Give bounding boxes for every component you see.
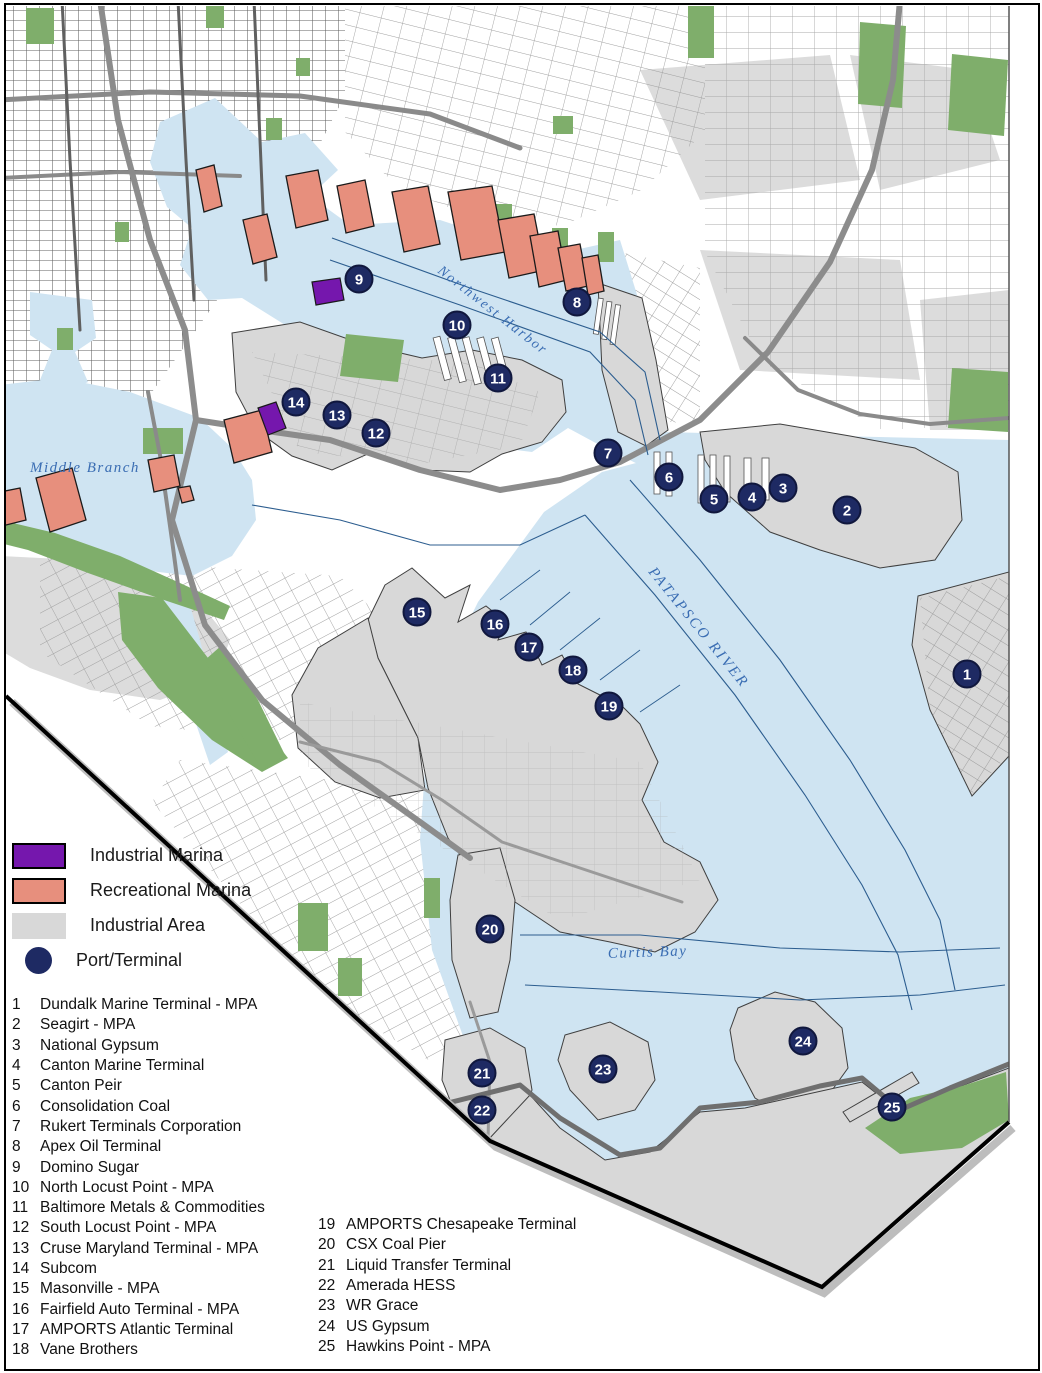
terminal-name: Liquid Transfer Terminal [346, 1257, 638, 1275]
terminal-list-item: 19AMPORTS Chesapeake Terminal [318, 1215, 638, 1235]
legend-item: Port/Terminal [12, 943, 312, 978]
terminal-list-item: 23WR Grace [318, 1296, 638, 1316]
terminal-name: Seagirt - MPA [40, 1016, 312, 1034]
port-marker-13[interactable]: 13 [324, 402, 351, 429]
terminal-number: 4 [12, 1057, 40, 1075]
svg-text:3: 3 [779, 481, 787, 498]
port-marker-17[interactable]: 17 [516, 634, 543, 661]
terminal-name: Canton Peir [40, 1077, 312, 1095]
terminal-name: National Gypsum [40, 1037, 312, 1055]
terminal-number: 8 [12, 1138, 40, 1156]
svg-text:10: 10 [449, 318, 466, 335]
terminal-name: AMPORTS Atlantic Terminal [40, 1321, 312, 1339]
port-marker-24[interactable]: 24 [790, 1028, 817, 1055]
svg-text:13: 13 [329, 408, 346, 425]
terminal-number: 18 [12, 1341, 40, 1359]
legend-item: Recreational Marina [12, 873, 312, 908]
terminal-name: US Gypsum [346, 1318, 638, 1336]
legend-item: Industrial Area [12, 908, 312, 943]
port-marker-11[interactable]: 11 [485, 365, 512, 392]
terminal-list-item: 10North Locust Point - MPA [12, 1178, 312, 1198]
terminal-name: CSX Coal Pier [346, 1236, 638, 1254]
port-marker-22[interactable]: 22 [469, 1097, 496, 1124]
port-marker-6[interactable]: 6 [656, 464, 683, 491]
legend-label: Industrial Area [90, 915, 205, 936]
terminal-number: 23 [318, 1297, 346, 1315]
terminal-number: 20 [318, 1236, 346, 1254]
port-marker-1[interactable]: 1 [954, 661, 981, 688]
terminal-list-item: 7Rukert Terminals Corporation [12, 1117, 312, 1137]
terminal-name: Consolidation Coal [40, 1098, 312, 1116]
terminal-number: 1 [12, 996, 40, 1014]
terminal-list-item: 8Apex Oil Terminal [12, 1137, 312, 1157]
terminal-name: Rukert Terminals Corporation [40, 1118, 312, 1136]
svg-text:2: 2 [843, 503, 851, 520]
terminal-list-item: 18Vane Brothers [12, 1340, 312, 1360]
port-marker-18[interactable]: 18 [560, 657, 587, 684]
terminal-name: Masonville - MPA [40, 1280, 312, 1298]
terminal-list-item: 25Hawkins Point - MPA [318, 1337, 638, 1357]
legend: Industrial MarinaRecreational MarinaIndu… [12, 838, 312, 978]
terminal-name: Canton Marine Terminal [40, 1057, 312, 1075]
terminal-list-item: 5Canton Peir [12, 1076, 312, 1096]
terminal-list-item: 6Consolidation Coal [12, 1096, 312, 1116]
terminal-number: 12 [12, 1219, 40, 1237]
terminal-list-item: 11Baltimore Metals & Commodities [12, 1198, 312, 1218]
port-marker-8[interactable]: 8 [564, 289, 591, 316]
terminal-number: 14 [12, 1260, 40, 1278]
terminal-number: 21 [318, 1257, 346, 1275]
svg-text:22: 22 [474, 1103, 491, 1120]
terminal-number: 22 [318, 1277, 346, 1295]
terminal-name: Amerada HESS [346, 1277, 638, 1295]
legend-swatch-industrial-area [12, 913, 66, 939]
terminal-number: 5 [12, 1077, 40, 1095]
port-marker-7[interactable]: 7 [595, 440, 622, 467]
port-marker-2[interactable]: 2 [834, 497, 861, 524]
map-page: Middle BranchNorthwest HarborPATAPSCO RI… [0, 0, 1042, 1373]
terminal-list-item: 15Masonville - MPA [12, 1279, 312, 1299]
terminal-number: 13 [12, 1240, 40, 1258]
terminal-number: 25 [318, 1338, 346, 1356]
terminal-list-column-2: 19AMPORTS Chesapeake Terminal20CSX Coal … [318, 1215, 638, 1357]
terminal-list-item: 3National Gypsum [12, 1036, 312, 1056]
terminal-list-item: 9Domino Sugar [12, 1157, 312, 1177]
legend-swatch-recreational-marina [12, 878, 66, 904]
svg-text:25: 25 [884, 1100, 901, 1117]
terminal-name: Baltimore Metals & Commodities [40, 1199, 312, 1217]
terminal-list-column-1: 1Dundalk Marine Terminal - MPA2Seagirt -… [12, 995, 312, 1360]
port-marker-21[interactable]: 21 [469, 1060, 496, 1087]
svg-text:23: 23 [595, 1062, 612, 1079]
terminal-list-item: 14Subcom [12, 1259, 312, 1279]
terminal-number: 6 [12, 1098, 40, 1116]
port-marker-12[interactable]: 12 [363, 420, 390, 447]
legend-label: Port/Terminal [76, 950, 182, 971]
terminal-list-item: 17AMPORTS Atlantic Terminal [12, 1320, 312, 1340]
svg-text:9: 9 [355, 272, 363, 289]
svg-text:14: 14 [288, 395, 305, 412]
terminal-number: 16 [12, 1301, 40, 1319]
terminal-number: 9 [12, 1159, 40, 1177]
water-label-curtis-bay: Curtis Bay [608, 943, 688, 962]
port-marker-14[interactable]: 14 [283, 389, 310, 416]
terminal-name: Subcom [40, 1260, 312, 1278]
terminal-name: Dundalk Marine Terminal - MPA [40, 996, 312, 1014]
legend-label: Industrial Marina [90, 845, 223, 866]
port-marker-10[interactable]: 10 [444, 312, 471, 339]
terminal-name: Cruse Maryland Terminal - MPA [40, 1240, 312, 1258]
svg-text:17: 17 [521, 640, 538, 657]
svg-text:7: 7 [604, 446, 612, 463]
terminal-number: 7 [12, 1118, 40, 1136]
svg-text:19: 19 [601, 699, 618, 716]
svg-text:1: 1 [963, 667, 971, 684]
terminal-number: 2 [12, 1016, 40, 1034]
terminal-number: 24 [318, 1318, 346, 1336]
port-marker-25[interactable]: 25 [879, 1094, 906, 1121]
terminal-name: Vane Brothers [40, 1341, 312, 1359]
terminal-list-item: 21Liquid Transfer Terminal [318, 1256, 638, 1276]
port-marker-20[interactable]: 20 [477, 916, 504, 943]
terminal-name: Domino Sugar [40, 1159, 312, 1177]
svg-text:20: 20 [482, 922, 499, 939]
legend-label: Recreational Marina [90, 880, 251, 901]
legend-item: Industrial Marina [12, 838, 312, 873]
terminal-name: Hawkins Point - MPA [346, 1338, 638, 1356]
terminal-name: AMPORTS Chesapeake Terminal [346, 1216, 638, 1234]
water-label-middle-branch: Middle Branch [29, 460, 140, 476]
terminal-name: Fairfield Auto Terminal - MPA [40, 1301, 312, 1319]
terminal-list-item: 22Amerada HESS [318, 1276, 638, 1296]
svg-text:8: 8 [573, 295, 581, 312]
terminal-list-item: 16Fairfield Auto Terminal - MPA [12, 1299, 312, 1319]
svg-text:15: 15 [409, 605, 426, 622]
terminal-list-item: 2Seagirt - MPA [12, 1015, 312, 1035]
terminal-name: South Locust Point - MPA [40, 1219, 312, 1237]
svg-text:21: 21 [474, 1066, 491, 1083]
port-marker-16[interactable]: 16 [482, 611, 509, 638]
terminal-list-item: 13Cruse Maryland Terminal - MPA [12, 1239, 312, 1259]
svg-text:18: 18 [565, 663, 582, 680]
terminal-name: North Locust Point - MPA [40, 1179, 312, 1197]
svg-text:5: 5 [710, 492, 718, 509]
terminal-number: 11 [12, 1199, 40, 1217]
port-marker-3[interactable]: 3 [770, 475, 797, 502]
terminal-number: 15 [12, 1280, 40, 1298]
svg-text:4: 4 [748, 490, 757, 507]
terminal-number: 10 [12, 1179, 40, 1197]
port-marker-9[interactable]: 9 [346, 266, 373, 293]
terminal-number: 17 [12, 1321, 40, 1339]
terminal-list-item: 20CSX Coal Pier [318, 1235, 638, 1255]
svg-text:12: 12 [368, 426, 385, 443]
svg-text:16: 16 [487, 617, 504, 634]
port-marker-5[interactable]: 5 [701, 486, 728, 513]
terminal-list-item: 4Canton Marine Terminal [12, 1056, 312, 1076]
terminal-list-item: 24US Gypsum [318, 1316, 638, 1336]
terminal-list-item: 12South Locust Point - MPA [12, 1218, 312, 1238]
port-marker-15[interactable]: 15 [404, 599, 431, 626]
svg-text:24: 24 [795, 1034, 812, 1051]
svg-text:6: 6 [665, 470, 673, 487]
terminal-name: Apex Oil Terminal [40, 1138, 312, 1156]
svg-text:11: 11 [490, 371, 506, 388]
port-marker-23[interactable]: 23 [590, 1056, 617, 1083]
terminal-number: 3 [12, 1037, 40, 1055]
port-marker-4[interactable]: 4 [739, 484, 766, 511]
legend-swatch-port-terminal [25, 947, 52, 974]
terminal-number: 19 [318, 1216, 346, 1234]
legend-swatch-industrial-marina [12, 843, 66, 869]
terminal-list-item: 1Dundalk Marine Terminal - MPA [12, 995, 312, 1015]
terminal-name: WR Grace [346, 1297, 638, 1315]
port-marker-19[interactable]: 19 [596, 693, 623, 720]
